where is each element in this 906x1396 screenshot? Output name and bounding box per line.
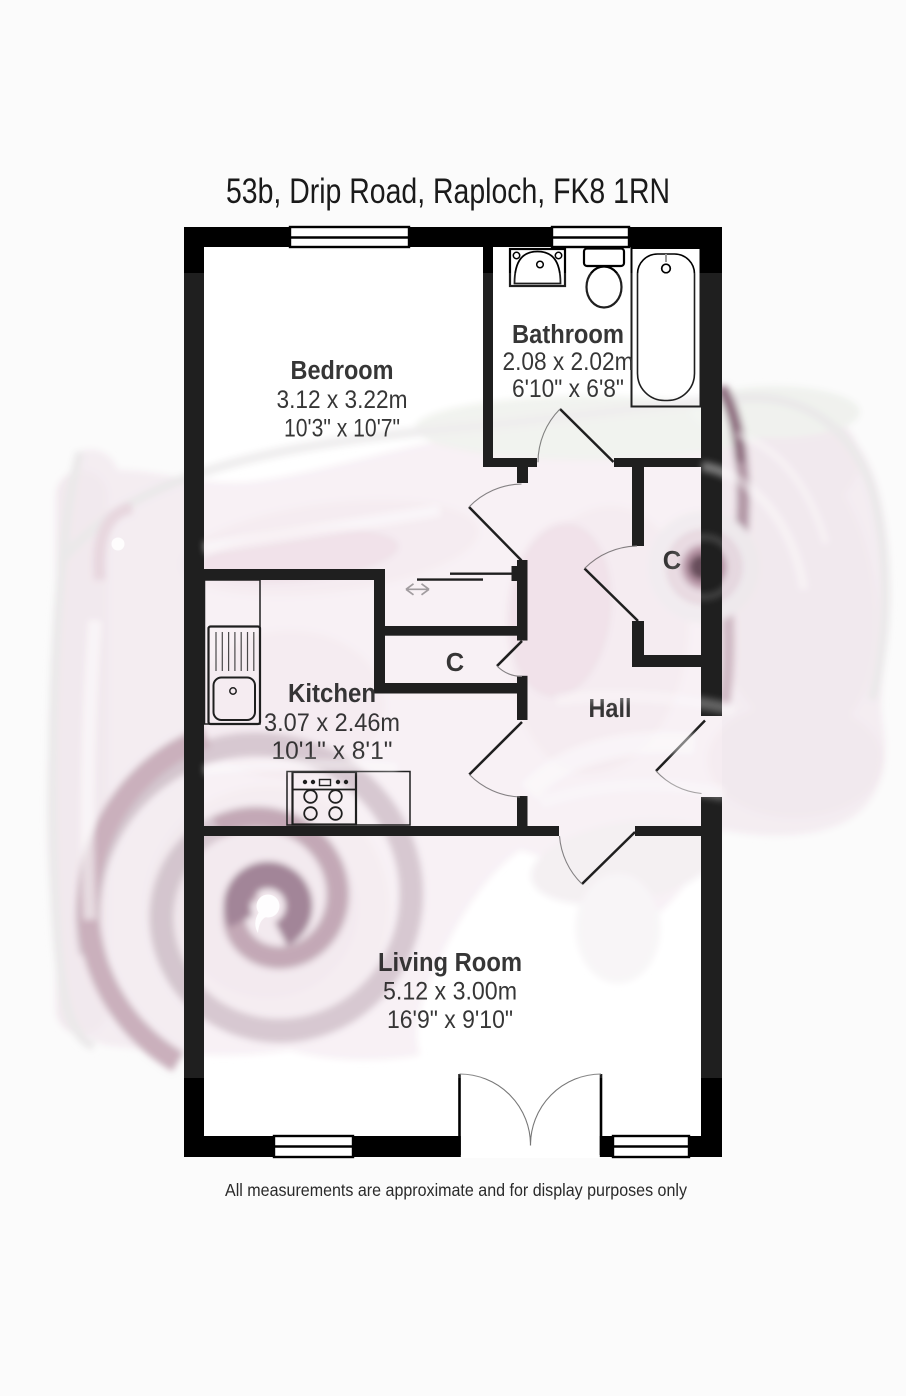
svg-text:All measurements are approxima: All measurements are approximate and for… bbox=[225, 1180, 687, 1200]
svg-text:53b, Drip Road, Raploch, FK8 1: 53b, Drip Road, Raploch, FK8 1RN bbox=[226, 172, 670, 211]
